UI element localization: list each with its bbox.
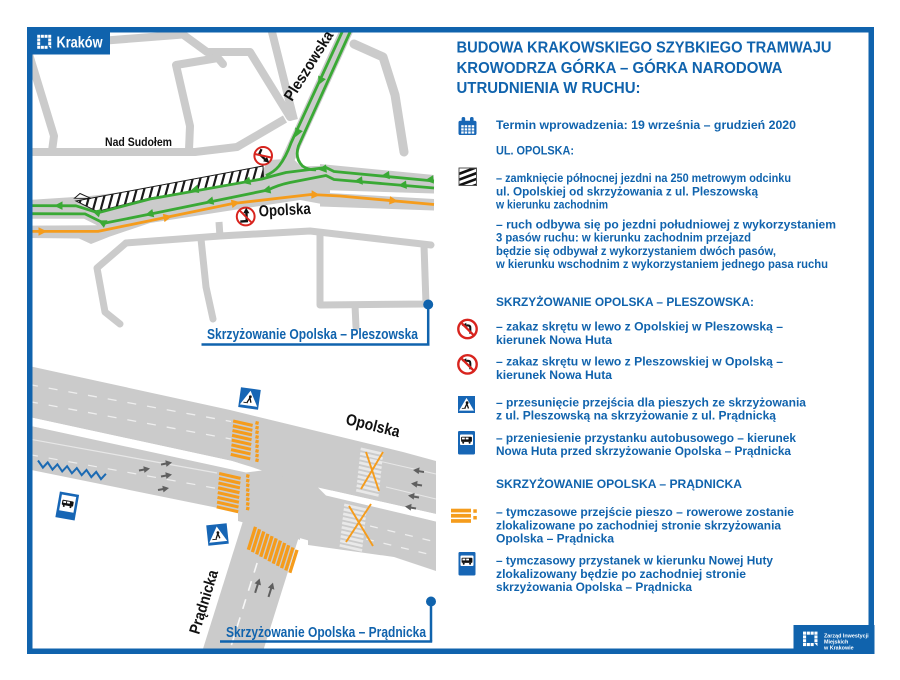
svg-text:– tymczasowy przystanek w kier: – tymczasowy przystanek w kierunku Nowej… bbox=[496, 554, 773, 568]
svg-text:Opolska – Prądnicka: Opolska – Prądnicka bbox=[496, 532, 614, 546]
svg-text:– tymczasowe przejście pieszo: – tymczasowe przejście pieszo – rowerowe… bbox=[496, 505, 794, 519]
svg-text:będzie się odbywał z wykorzyst: będzie się odbywał z wykorzystaniem dwóc… bbox=[496, 244, 776, 258]
svg-text:kierunek Nowa Huta: kierunek Nowa Huta bbox=[496, 333, 612, 347]
svg-text:Skrzyżowanie Opolska – Pleszow: Skrzyżowanie Opolska – Pleszowska bbox=[207, 327, 419, 343]
svg-text:Nad Sudołem: Nad Sudołem bbox=[105, 135, 172, 149]
svg-text:– zamknięcie północnej jezdni: – zamknięcie północnej jezdni na 250 met… bbox=[496, 171, 791, 185]
svg-text:skrzyżowania Opolska – Prądnic: skrzyżowania Opolska – Prądnicka bbox=[496, 580, 692, 594]
svg-text:kierunek Nowa Huta: kierunek Nowa Huta bbox=[496, 368, 612, 382]
svg-text:zlokalizowane po zachodniej st: zlokalizowane po zachodniej stronie skrz… bbox=[496, 518, 781, 532]
svg-text:Kraków: Kraków bbox=[57, 35, 104, 52]
svg-text:SKRZYŻOWANIE OPOLSKA – PRĄDNIC: SKRZYŻOWANIE OPOLSKA – PRĄDNICKA bbox=[496, 476, 742, 491]
svg-text:w kierunku wschodnim z wykorzy: w kierunku wschodnim z wykorzystaniem je… bbox=[495, 257, 828, 271]
svg-text:Skrzyżowanie Opolska – Prądnic: Skrzyżowanie Opolska – Prądnicka bbox=[226, 625, 427, 641]
svg-text:z ul. Pleszowską na skrzyżowan: z ul. Pleszowską na skrzyżowanie z ul. P… bbox=[496, 409, 776, 423]
svg-text:Termin wprowadzenia: 19 wrześn: Termin wprowadzenia: 19 września – grudz… bbox=[496, 118, 796, 132]
svg-text:SKRZYŻOWANIE OPOLSKA – PLESZOW: SKRZYŻOWANIE OPOLSKA – PLESZOWSKA: bbox=[496, 294, 754, 309]
svg-text:Nowa Huta przed skrzyżowanie O: Nowa Huta przed skrzyżowanie Opolska – P… bbox=[496, 444, 791, 458]
svg-text:– ruch odbywa się po jezdni po: – ruch odbywa się po jezdni południowej … bbox=[496, 217, 836, 231]
svg-text:KROWODRZA GÓRKA – GÓRKA NARODO: KROWODRZA GÓRKA – GÓRKA NARODOWA bbox=[457, 58, 783, 77]
svg-text:– zakaz skrętu w lewo z Opolsk: – zakaz skrętu w lewo z Opolskiej w Ples… bbox=[496, 320, 783, 334]
svg-text:Opolska: Opolska bbox=[344, 411, 402, 441]
svg-text:UL. OPOLSKA:: UL. OPOLSKA: bbox=[496, 144, 574, 158]
svg-text:ul. Opolskiej od skrzyżowania: ul. Opolskiej od skrzyżowania z ul. Ples… bbox=[496, 184, 758, 198]
svg-text:UTRUDNIENIA W RUCHU:: UTRUDNIENIA W RUCHU: bbox=[457, 80, 641, 97]
svg-text:– przesunięcie przejścia dla p: – przesunięcie przejścia dla pieszych ze… bbox=[496, 395, 806, 409]
svg-text:w Krakowie: w Krakowie bbox=[823, 646, 854, 652]
svg-text:– przeniesienie przystanku aut: – przeniesienie przystanku autobusowego … bbox=[496, 431, 796, 445]
svg-text:zlokalizowany będzie po zachod: zlokalizowany będzie po zachodniej stron… bbox=[496, 567, 746, 581]
svg-text:Opolska: Opolska bbox=[258, 201, 311, 221]
svg-text:– zakaz skrętu w lewo z Pleszo: – zakaz skrętu w lewo z Pleszowskiej w O… bbox=[496, 355, 783, 369]
svg-text:3 pasów ruchu: w kierunku zach: 3 pasów ruchu: w kierunku zachodnim prze… bbox=[496, 231, 751, 245]
svg-text:w kierunku zachodnim: w kierunku zachodnim bbox=[495, 198, 608, 212]
svg-text:BUDOWA KRAKOWSKIEGO SZYBKIEGO: BUDOWA KRAKOWSKIEGO SZYBKIEGO TRAMWAJU bbox=[457, 40, 832, 57]
